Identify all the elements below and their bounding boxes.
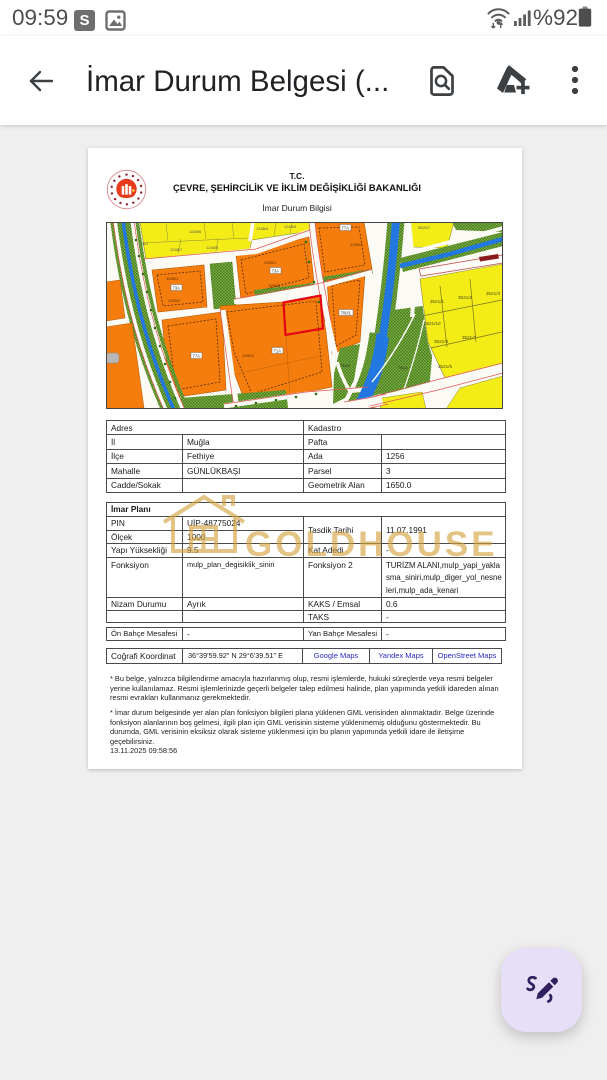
svg-text:1250/1: 1250/1 bbox=[242, 353, 255, 358]
svg-text:700/1: 700/1 bbox=[341, 310, 352, 315]
svg-text:3521/9: 3521/9 bbox=[434, 339, 448, 344]
svg-text:3521/10: 3521/10 bbox=[424, 321, 441, 326]
svg-text:746/1: 746/1 bbox=[398, 365, 409, 370]
svg-text:3521/3: 3521/3 bbox=[486, 291, 500, 296]
svg-text:1248/4: 1248/4 bbox=[256, 226, 269, 231]
svg-text:73A: 73A bbox=[272, 268, 280, 273]
svg-text:77A: 77A bbox=[193, 353, 201, 358]
svg-text:1255/1: 1255/1 bbox=[166, 276, 179, 281]
svg-text:73A: 73A bbox=[173, 285, 181, 290]
svg-text:1248/1: 1248/1 bbox=[136, 241, 149, 246]
svg-text:71A: 71A bbox=[274, 348, 282, 353]
svg-text:77A: 77A bbox=[342, 225, 350, 230]
svg-text:3521/1: 3521/1 bbox=[430, 299, 444, 304]
svg-text:1248/3: 1248/3 bbox=[284, 224, 297, 229]
svg-text:3520/7: 3520/7 bbox=[418, 225, 431, 230]
svg-text:748/2: 748/2 bbox=[340, 363, 351, 368]
svg-text:3521/7: 3521/7 bbox=[462, 335, 476, 340]
svg-text:3521/5: 3521/5 bbox=[438, 364, 452, 369]
svg-text:1248/7: 1248/7 bbox=[170, 247, 183, 252]
svg-text:3521/2: 3521/2 bbox=[458, 295, 472, 300]
svg-text:1255/2: 1255/2 bbox=[168, 298, 181, 303]
svg-text:GOLDHOUSE: GOLDHOUSE bbox=[245, 525, 498, 564]
svg-text:1248/9: 1248/9 bbox=[206, 245, 219, 250]
svg-text:1248/6: 1248/6 bbox=[189, 229, 202, 234]
svg-text:1255/1: 1255/1 bbox=[264, 260, 277, 265]
svg-text:1255/3: 1255/3 bbox=[350, 242, 363, 247]
